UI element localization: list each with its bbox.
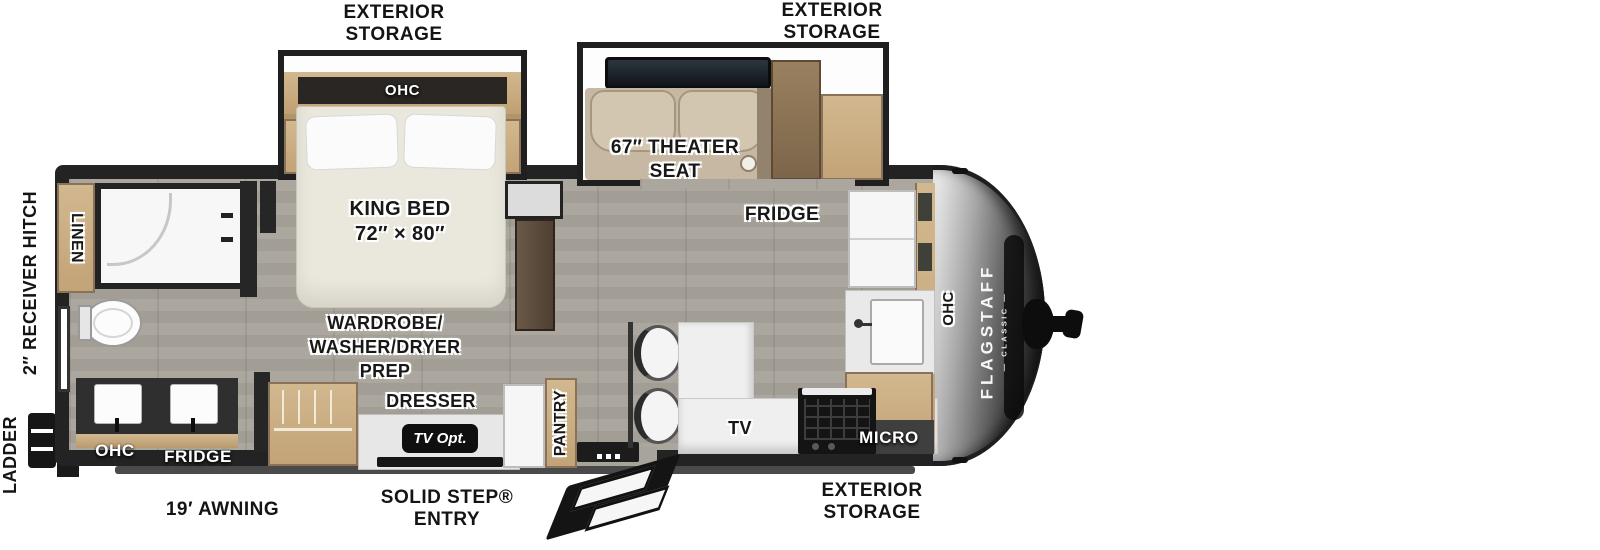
label-fridge: FRIDGE — [722, 204, 842, 226]
fridge-seam — [850, 238, 914, 240]
marker-light-bottom — [952, 457, 968, 463]
toilet-tank — [78, 305, 92, 341]
bath-wall — [240, 181, 257, 297]
cabinet-inset — [918, 193, 932, 221]
swivel-chair — [634, 325, 682, 381]
label-bath-fridge: FRIDGE — [150, 447, 246, 467]
label-bedroom-ohc: OHC — [385, 82, 420, 99]
ladder-icon — [28, 413, 56, 468]
cabinet-inset — [918, 243, 932, 271]
label-kitchen-ohc: OHC — [940, 291, 957, 326]
label-ladder: LADDER — [0, 416, 21, 494]
partition-wall — [505, 181, 563, 219]
counter-peninsula — [678, 322, 754, 406]
ladder-rung — [31, 447, 53, 451]
wardrobe-shelf — [274, 428, 352, 431]
label-micro: MICRO — [845, 428, 933, 448]
brand-series: CLASSIC — [1000, 291, 1009, 371]
bedroom-wall — [260, 181, 276, 233]
shower-glass — [107, 193, 172, 266]
wardrobe-cabinet — [268, 382, 358, 466]
wardrobe-rod — [314, 390, 316, 424]
toilet-seat — [93, 308, 133, 338]
threshold-dot — [615, 454, 620, 459]
label-linen: LINEN — [67, 213, 85, 263]
label-bath-ohc: OHC — [84, 441, 146, 461]
toilet — [84, 299, 142, 347]
entry-steps — [540, 468, 690, 543]
slide-cabinet-light — [821, 94, 883, 180]
stove-backsplash — [802, 388, 872, 395]
pillow — [403, 113, 497, 170]
label-tv: TV — [700, 418, 780, 439]
label-theater-seat: 67″ THEATER SEAT — [585, 136, 765, 184]
faucet — [191, 418, 195, 432]
label-exterior-storage-top-right: EXTERIOR STORAGE — [756, 0, 908, 44]
faucet-base — [854, 319, 863, 328]
shower-head — [221, 213, 233, 218]
label-receiver-hitch: 2″ RECEIVER HITCH — [19, 191, 41, 375]
label-pantry: PANTRY — [552, 390, 570, 456]
stove-knob — [812, 443, 819, 450]
chair-table-frame — [628, 322, 633, 448]
hitch-coupler — [1062, 309, 1085, 340]
threshold-dot — [606, 454, 611, 459]
stove-knob — [828, 443, 835, 450]
label-exterior-storage-bottom: EXTERIOR STORAGE — [796, 480, 948, 524]
label-awning: 19′ AWNING — [130, 499, 315, 521]
kitchen-sink — [870, 299, 924, 365]
rear-window — [58, 306, 70, 392]
ladder-rung — [31, 429, 53, 433]
wardrobe-rod — [298, 390, 300, 424]
pillow — [305, 113, 399, 170]
wardrobe-rod — [330, 390, 332, 424]
brand-block: FLAGSTAFF CLASSIC — [978, 263, 1009, 399]
faucet — [115, 418, 119, 432]
label-tv-opt: TV Opt. — [413, 430, 466, 447]
brand-name: FLAGSTAFF — [978, 263, 998, 399]
refrigerator — [848, 190, 916, 288]
threshold-dot — [597, 454, 602, 459]
label-dresser: DRESSER — [366, 391, 496, 412]
sink-counter — [845, 290, 935, 374]
slide-opening — [640, 179, 855, 189]
label-exterior-storage-top-left: EXTERIOR STORAGE — [318, 2, 470, 46]
pantry-cabinet — [503, 384, 545, 468]
bedroom-ohc-cabinet: OHC — [298, 77, 507, 104]
shower-valve — [221, 237, 233, 242]
skylight — [605, 57, 771, 89]
sliding-door — [515, 219, 555, 331]
tv-on-dresser — [377, 457, 503, 467]
label-king-bed: KING BED 72″ × 80″ — [296, 197, 504, 247]
slide-cabinet-dark — [771, 60, 821, 180]
floorplan: EXTERIOR STORAGE EXTERIOR STORAGE EXTERI… — [0, 0, 1600, 550]
vanity-counter — [76, 378, 238, 440]
tv-opt-badge: TV Opt. — [402, 424, 478, 453]
shower — [95, 183, 247, 289]
swivel-chair — [634, 388, 682, 444]
label-solid-step-entry: SOLID STEP® ENTRY — [372, 487, 522, 531]
label-wardrobe: WARDROBE/ WASHER/DRYER PREP — [300, 311, 470, 383]
wardrobe-rod — [282, 390, 284, 424]
marker-light-top — [952, 168, 968, 174]
